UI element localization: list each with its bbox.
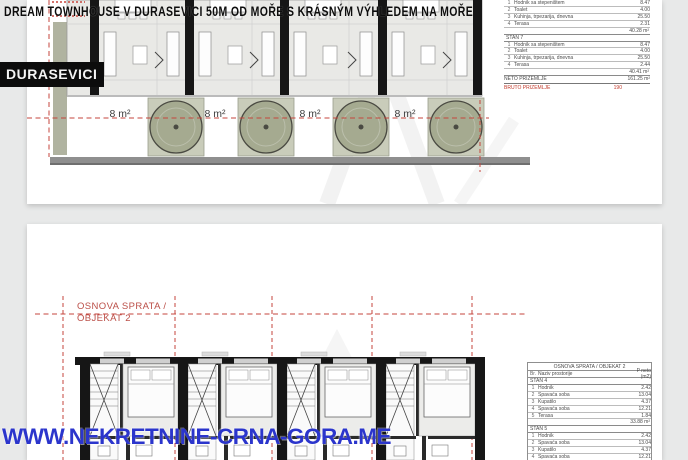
subtotal-row: 40.41 m²	[504, 69, 650, 76]
table-row: 4 Spavaća soba 12.21	[528, 454, 651, 460]
table-row: 4 Terasa 2.44	[504, 62, 650, 69]
ground-floor-plan-panel: 8 m² 8 m² 8 m² 8 m² 1 Hod	[27, 0, 662, 204]
terraces: 8 m² 8 m² 8 m² 8 m²	[110, 98, 485, 156]
first-floor-area-table: OSNOVA SPRATA / OBJEKAT 2 Br. Naziv pros…	[527, 362, 652, 460]
table-row: 2 Toalet 4.00	[504, 48, 650, 55]
floor-plan-title: OSNOVA SPRATA / OBJEKAT 2	[77, 301, 166, 324]
table-row: 1 Hodnik sa stepeništem 8.47	[504, 42, 650, 49]
ground-floor-area-table: 1 Hodnik sa stepeništem 8.47 2 Toalet 4.…	[504, 0, 650, 92]
table-row: 3 Kuhinja, trpezarija, dnevna 25.50	[504, 55, 650, 62]
tree-icon	[150, 101, 202, 153]
tree-icon	[430, 101, 482, 153]
table-row: 5 Terasa 1.84	[528, 413, 651, 420]
table-header-row: Br. Naziv prostorije P neto (m2)	[528, 371, 651, 378]
subtotal-row: 40.28 m²	[504, 28, 650, 35]
location-badge: DURASEVICI	[0, 62, 104, 87]
table-row: 4 Terasa 2.31	[504, 21, 650, 28]
unit-header-row: STAN 5	[528, 426, 651, 433]
floor-plan-title-line1: OSNOVA SPRATA /	[77, 301, 166, 313]
balcony-rails	[104, 352, 426, 356]
listing-headline: DREAM TOWNHOUSE V DURASEVICI 50M OD MOŘE…	[4, 3, 473, 19]
tree-icon	[335, 101, 387, 153]
table-row: 1 Hodnik 2.42	[528, 385, 651, 392]
listing-image: 8 m² 8 m² 8 m² 8 m² 1 Hod	[0, 0, 688, 460]
table-row: 3 Kupatilo 4.37	[528, 399, 651, 406]
tree-icon	[240, 101, 292, 153]
table-row: 2 Toalet 4.00	[504, 7, 650, 14]
unit-header-row: STAN 7	[504, 35, 650, 42]
unit-plan	[386, 364, 475, 460]
table-row: 2 Spavaća soba 13.04	[528, 440, 651, 447]
table-row: 1 Hodnik 2.42	[528, 433, 651, 440]
bruto-total-row: BRUTO PRIZEMLJE 190	[504, 85, 650, 92]
table-row: 2 Spavaća soba 13.04	[528, 392, 651, 399]
table-row: 1 Hodnik sa stepeništem 8.47	[504, 0, 650, 7]
table-row: 3 Kuhinja, trpezarija, dnevna 25.50	[504, 14, 650, 21]
website-watermark: WWW.NEKRETNINE-CRNA-GORA.ME	[2, 424, 391, 450]
table-row: 3 Kupatilo 4.37	[528, 447, 651, 454]
neto-total-row: NETO PRIZEMLJE 161.25 m²	[504, 76, 650, 84]
subtotal-row: 33.88 m²	[528, 419, 651, 426]
table-row: 4 Spavaća soba 12.21	[528, 406, 651, 413]
retaining-wall	[50, 157, 530, 165]
floor-plan-title-line2: OBJEKAT 2	[77, 313, 166, 325]
